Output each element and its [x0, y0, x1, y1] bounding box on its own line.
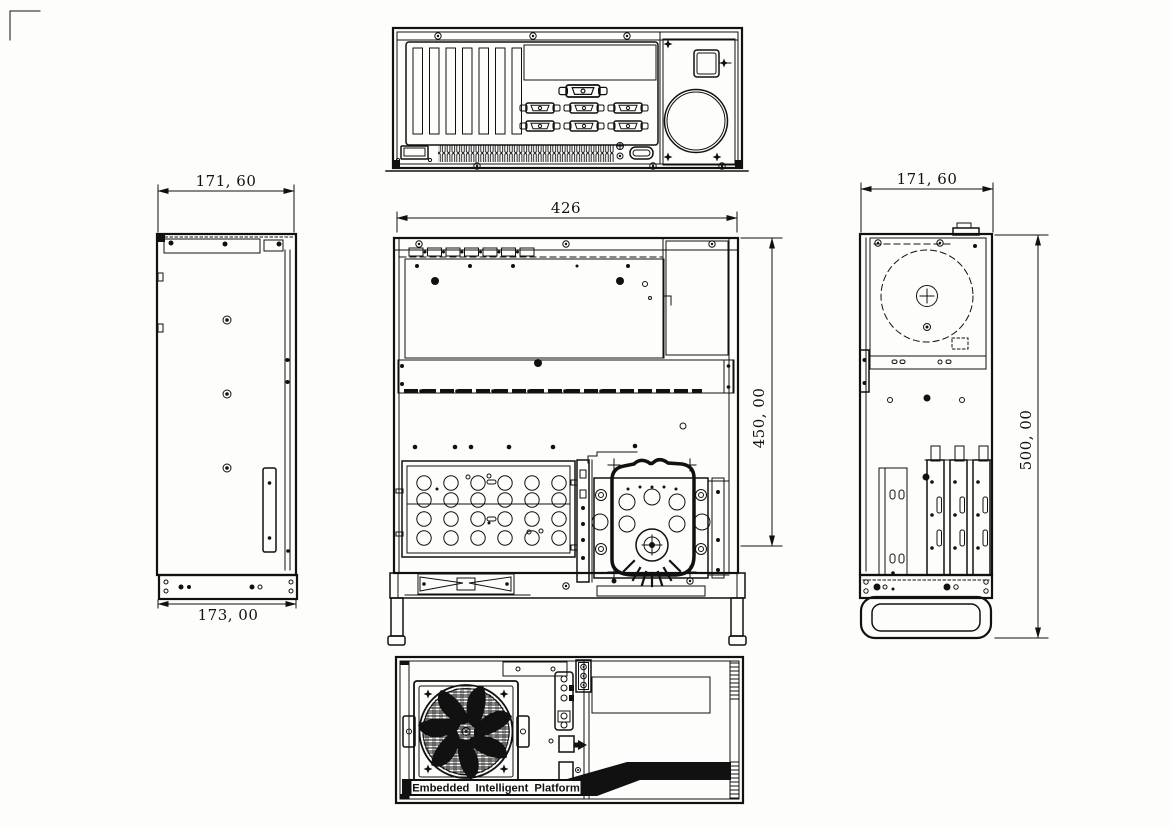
dim-top-height: 450, 00 — [741, 238, 782, 546]
dsub-connectors — [520, 85, 648, 131]
front-display-cutout — [592, 677, 710, 713]
chassis-feet — [388, 573, 746, 645]
dim-text-top-width: 426 — [551, 199, 581, 217]
right-bottom-rail — [860, 575, 992, 598]
dim-text-right-height: 500, 00 — [1017, 410, 1035, 471]
slot-cutout-row — [409, 248, 534, 256]
brand-label: Embedded Intelligent Platform — [411, 781, 581, 795]
right-side-view: 171, 60 500, 00 — [860, 170, 1048, 638]
system-fan-top — [592, 459, 729, 586]
left-side-view: 171, 60 173, 00 — [157, 172, 297, 624]
power-button — [559, 736, 587, 752]
dim-text-left-width: 171, 60 — [196, 172, 257, 190]
power-supply — [660, 32, 735, 165]
brand-label-text: Embedded Intelligent Platform — [412, 783, 580, 795]
dim-text-right-width: 171, 60 — [897, 170, 958, 188]
psu-fan — [665, 90, 728, 153]
drawing-sheet: 171, 60 173, 00 — [0, 0, 1171, 827]
chassis-handle — [861, 597, 991, 638]
dim-right-width: 171, 60 — [861, 170, 993, 232]
dim-text-top-height: 450, 00 — [750, 388, 768, 449]
front-view: Embedded Intelligent Platform — [396, 657, 743, 803]
expansion-slot-area — [406, 42, 658, 145]
io-shield-blank — [524, 45, 656, 80]
right-edge-hatch — [730, 663, 739, 798]
hdd-rails — [923, 446, 993, 575]
dim-top-width: 426 — [397, 199, 737, 232]
side-divider — [870, 356, 986, 369]
vent-grille — [438, 145, 614, 162]
front-fan — [403, 681, 529, 782]
dim-right-height: 500, 00 — [995, 235, 1048, 638]
drawing-canvas: 171, 60 173, 00 — [0, 0, 1171, 827]
vga-connector — [630, 147, 653, 159]
rear-view — [386, 28, 748, 171]
ac-inlet — [694, 50, 719, 77]
mid-crossmember — [398, 359, 734, 393]
sheet-corner-mark — [10, 11, 40, 40]
dim-left-bottom-width: 173, 00 — [158, 600, 296, 624]
led-indicators — [555, 672, 574, 730]
cpu-fan-side — [870, 238, 986, 356]
side-panel-screws — [223, 316, 231, 472]
center-rail — [571, 460, 592, 582]
drive-bay-plate — [396, 461, 575, 557]
keyboard-connector — [396, 146, 431, 162]
top-view: 426 450, 00 — [388, 199, 782, 645]
drive-bracket — [879, 468, 907, 575]
left-bottom-rail — [159, 575, 297, 599]
dim-left-width: 171, 60 — [158, 172, 294, 232]
dim-text-left-bottom-width: 173, 00 — [198, 606, 259, 624]
